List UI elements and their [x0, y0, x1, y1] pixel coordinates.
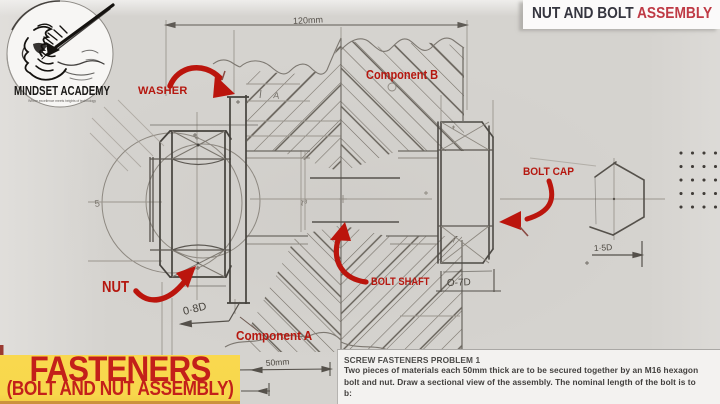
- svg-text:5: 5: [94, 198, 101, 210]
- svg-text:120mm: 120mm: [293, 14, 323, 26]
- svg-text:1·5D: 1·5D: [594, 242, 613, 253]
- svg-text:Where excellence meets heights: Where excellence meets heights of techno…: [28, 99, 96, 103]
- svg-text:O-7D: O-7D: [447, 277, 471, 289]
- svg-text:0·8D: 0·8D: [182, 300, 208, 317]
- svg-text:50mm: 50mm: [265, 356, 289, 368]
- svg-text:τ³: τ³: [300, 197, 308, 208]
- svg-text:MINDSET ACADEMY: MINDSET ACADEMY: [14, 84, 111, 98]
